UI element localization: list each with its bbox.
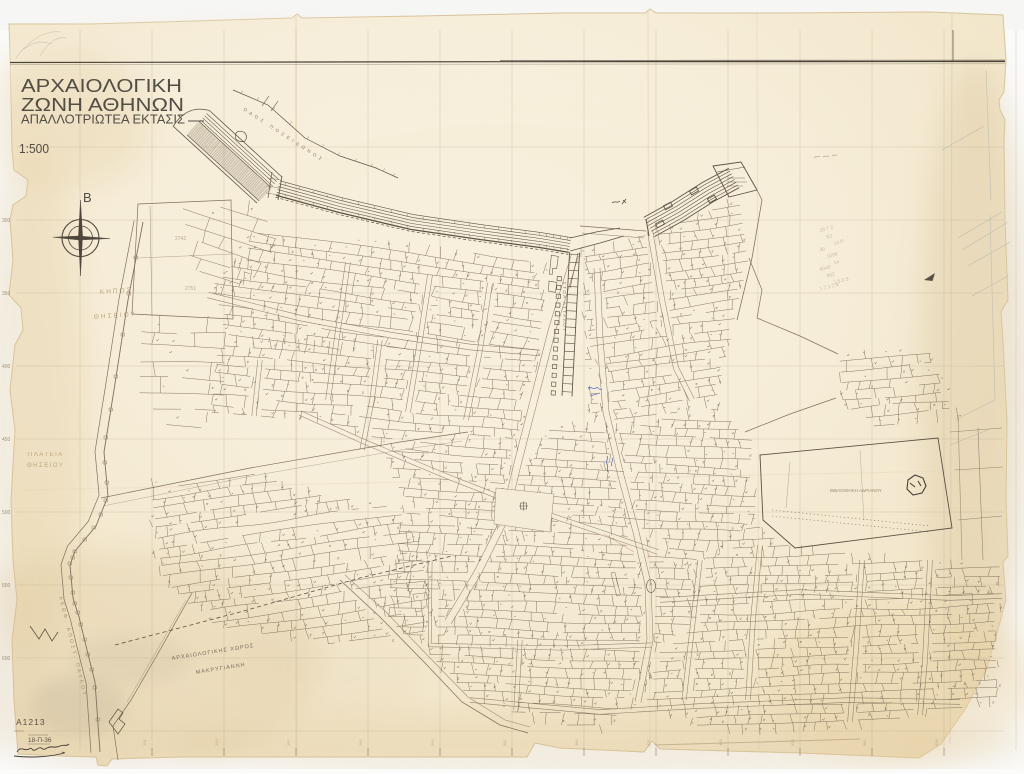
svg-text:Α1213: Α1213 xyxy=(16,717,46,727)
svg-text:2751: 2751 xyxy=(185,286,196,292)
svg-text:101: 101 xyxy=(142,739,147,746)
svg-text:581: 581 xyxy=(862,739,867,746)
svg-text:2742: 2742 xyxy=(175,236,186,242)
svg-text:B: B xyxy=(83,190,92,205)
svg-text:600: 600 xyxy=(2,656,11,662)
svg-text:ΠΛΑΤΕΙΑ: ΠΛΑΤΕΙΑ xyxy=(28,452,64,458)
svg-text:293: 293 xyxy=(430,739,435,746)
svg-text:245: 245 xyxy=(358,739,363,746)
svg-text:485: 485 xyxy=(718,739,723,746)
svg-text:149: 149 xyxy=(214,739,219,746)
svg-text:18-Π-36: 18-Π-36 xyxy=(28,737,52,744)
svg-text:300: 300 xyxy=(2,218,11,224)
svg-text:ΒΙΒΛΙΟΘΗΚΗ ΑΔΡΙΑΝΟΥ: ΒΙΒΛΙΟΘΗΚΗ ΑΔΡΙΑΝΟΥ xyxy=(830,488,882,493)
svg-text:629: 629 xyxy=(934,739,939,746)
svg-text:ΘΗΣΕΙΟΥ: ΘΗΣΕΙΟΥ xyxy=(27,463,64,469)
svg-text:500: 500 xyxy=(2,510,11,516)
svg-text:389: 389 xyxy=(574,739,579,746)
svg-text:ΑΠΑΛΛΟΤΡΙΩΤΕΑ ΕΚΤΑΣΙΣ: ΑΠΑΛΛΟΤΡΙΩΤΕΑ ΕΚΤΑΣΙΣ xyxy=(21,113,185,127)
svg-text:400: 400 xyxy=(2,364,11,370)
svg-text:1:500: 1:500 xyxy=(19,142,49,156)
svg-text:550: 550 xyxy=(2,583,11,589)
svg-text:ΑΡΧΑΙΟΛΟΓΙΚΗ: ΑΡΧΑΙΟΛΟΓΙΚΗ xyxy=(21,75,182,96)
svg-text:341: 341 xyxy=(502,739,507,746)
svg-text:ΣΤΟΑ ΑΤΤΑΛΟΥ: ΣΤΟΑ ΑΤΤΑΛΟΥ xyxy=(562,282,567,333)
svg-text:450: 450 xyxy=(2,437,11,443)
svg-text:197: 197 xyxy=(286,739,291,746)
svg-text:437: 437 xyxy=(646,739,651,746)
svg-text:533: 533 xyxy=(790,739,795,746)
svg-text:350: 350 xyxy=(2,291,11,297)
